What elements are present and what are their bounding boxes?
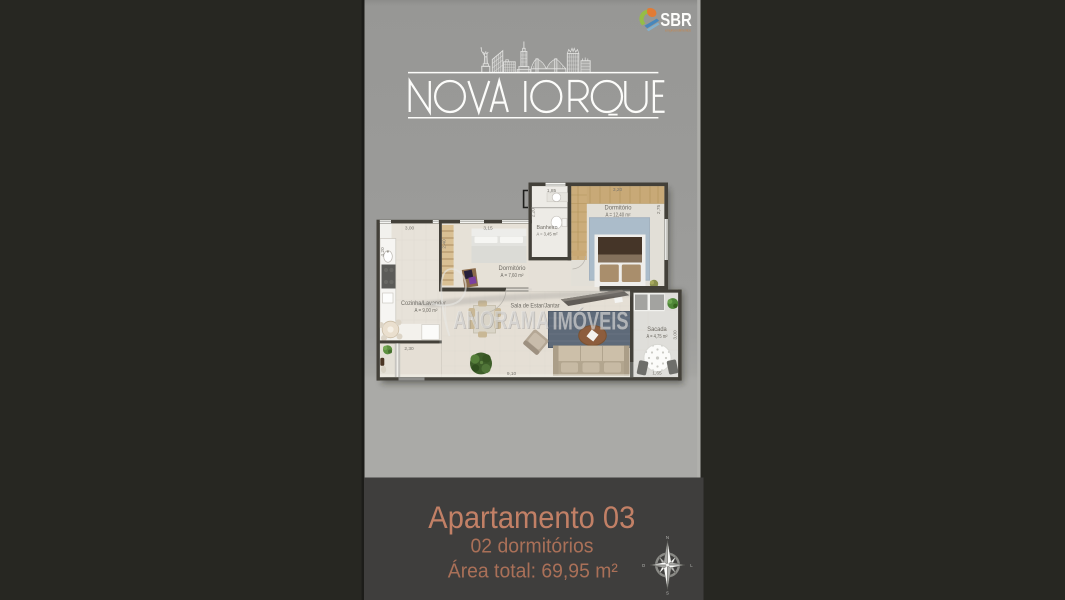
svg-text:3,00: 3,00: [405, 226, 415, 232]
svg-text:Dormitório: Dormitório: [499, 265, 527, 272]
svg-text:9,10: 9,10: [507, 371, 517, 377]
svg-text:empreendimentos: empreendimentos: [665, 29, 691, 33]
svg-text:2,40: 2,40: [442, 239, 448, 249]
svg-text:1,85: 1,85: [547, 188, 557, 194]
svg-text:A = 3,45 m²: A = 3,45 m²: [537, 232, 558, 238]
svg-text:1,65: 1,65: [652, 371, 662, 377]
svg-text:2,20: 2,20: [530, 208, 536, 218]
svg-text:A = 4,75 m²: A = 4,75 m²: [647, 334, 668, 340]
svg-text:Apartamento 03: Apartamento 03: [428, 499, 635, 535]
svg-text:S: S: [666, 591, 669, 596]
svg-text:A = 7,60 m²: A = 7,60 m²: [501, 273, 524, 279]
svg-text:Área total: 69,95 m²: Área total: 69,95 m²: [448, 560, 618, 583]
svg-text:3,20: 3,20: [613, 187, 623, 193]
svg-text:02 dormitórios: 02 dormitórios: [471, 536, 594, 558]
svg-text:ANORAMA: ANORAMA: [453, 307, 549, 335]
svg-text:A = 9,00 m²: A = 9,00 m²: [415, 308, 438, 314]
svg-text:IMÓVEIS: IMÓVEIS: [553, 306, 629, 336]
svg-text:Banheiro: Banheiro: [537, 225, 558, 231]
svg-text:2,30: 2,30: [404, 346, 414, 352]
svg-text:SBR: SBR: [660, 9, 692, 30]
svg-text:Dormitório: Dormitório: [605, 205, 633, 212]
svg-text:3,00: 3,00: [673, 330, 679, 340]
svg-text:N: N: [666, 535, 669, 540]
svg-text:A = 12,40 m²: A = 12,40 m²: [606, 213, 631, 219]
svg-text:4,20: 4,20: [380, 247, 386, 257]
svg-text:O: O: [642, 563, 646, 568]
svg-text:2,75: 2,75: [656, 205, 662, 215]
svg-text:Sacada: Sacada: [647, 326, 667, 333]
svg-text:3,15: 3,15: [483, 226, 493, 232]
